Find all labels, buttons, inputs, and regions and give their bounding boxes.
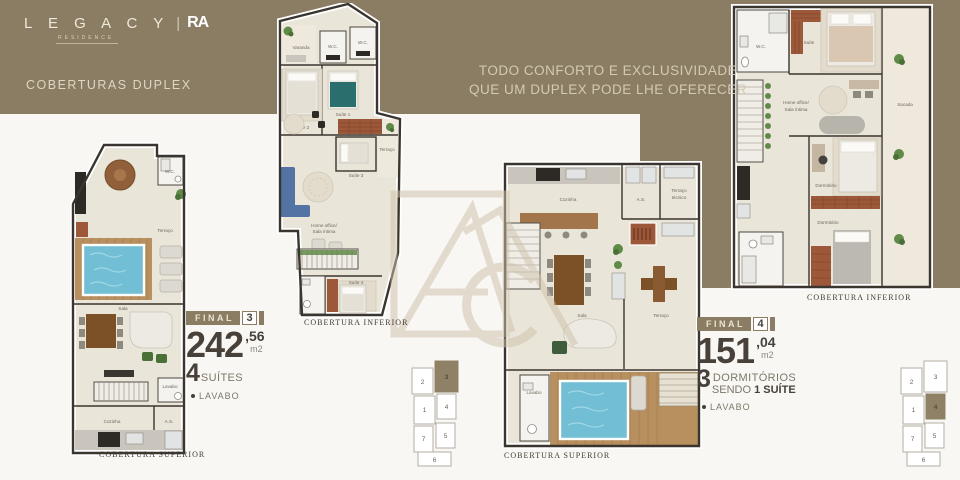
svg-text:Suíte 4: Suíte 4: [349, 280, 364, 285]
area-integer: 151: [697, 335, 754, 366]
logo-divider: |: [176, 15, 180, 32]
svg-text:Suíte 1: Suíte 1: [336, 112, 351, 117]
closet-band: [811, 196, 880, 209]
lavabo-room: Lavabo: [158, 378, 184, 402]
svg-text:técnico: técnico: [672, 195, 687, 200]
suites-count: 4 SUÍTES: [186, 362, 265, 385]
bedrooms-count: 3 DORMITÓRIOS SENDO 1 SUÍTE: [697, 368, 796, 396]
lounger: [631, 376, 646, 410]
shelf: [612, 273, 625, 299]
svg-text:Suíte 3: Suíte 3: [349, 173, 364, 178]
final-label: FINAL: [697, 317, 751, 331]
chaise: [819, 116, 865, 134]
round-rug: [819, 86, 847, 114]
keyplan-final4: 2 3 1 4 7 5 6: [896, 356, 952, 468]
kitchen-counter: [75, 430, 184, 450]
svg-text:7: 7: [911, 436, 915, 443]
svg-text:Terraço: Terraço: [653, 313, 669, 318]
svg-text:5: 5: [933, 433, 937, 440]
sub-prefix: SENDO: [712, 384, 754, 396]
tagline: TODO CONFORTO E EXCLUSIVIDADE QUE UM DUP…: [462, 61, 754, 99]
svg-text:Home office/: Home office/: [311, 223, 337, 228]
kitchen-counter: [508, 167, 620, 184]
svg-text:W.C.: W.C.: [165, 169, 175, 174]
svg-text:A.S.: A.S.: [637, 197, 646, 202]
varanda: Varanda: [282, 25, 316, 65]
unit3-spec: FINAL 3 242 ,56 m2 4 SUÍTES LAVABO: [186, 311, 265, 401]
area-decimal: ,04: [756, 336, 775, 348]
loungers: [160, 246, 182, 292]
svg-text:Terraço: Terraço: [157, 228, 173, 233]
svg-text:Terraço: Terraço: [379, 147, 395, 152]
plan-final4-inferior: Sacada W.C. Suíte: [731, 4, 933, 291]
sideboard: [104, 370, 134, 377]
bullet-label: LAVABO: [710, 402, 751, 412]
svg-text:4: 4: [445, 404, 449, 411]
page-title: COBERTURAS DUPLEX: [26, 78, 192, 92]
svg-text:7: 7: [422, 436, 426, 443]
svg-text:2: 2: [910, 379, 914, 386]
area-value: 151 ,04 m2: [697, 335, 796, 366]
svg-text:Sacada: Sacada: [897, 102, 913, 107]
round-rug: [303, 172, 333, 202]
svg-text:Dormitório: Dormitório: [815, 183, 837, 188]
svg-text:W.C.: W.C.: [756, 44, 766, 49]
balcony-strip: [883, 8, 929, 286]
wash-basin: [662, 223, 694, 236]
svg-text:Lavabo: Lavabo: [162, 384, 178, 389]
wc-room: W.C.: [158, 157, 183, 185]
office-chair: [318, 121, 325, 128]
lavabo-room: Lavabo: [520, 375, 549, 441]
plan-caption: COBERTURA INFERIOR: [807, 293, 911, 302]
sub-bold: 1 SUÍTE: [754, 384, 796, 396]
count-number: 4: [186, 362, 200, 385]
svg-text:Cozinha: Cozinha: [104, 419, 121, 424]
logo-partner-monogram: RA: [187, 14, 208, 32]
badge-tab: [259, 311, 264, 325]
plan-final3-superior: W.C. Terraço: [70, 142, 188, 456]
area-unit: m2: [756, 350, 775, 360]
pool: [560, 381, 628, 439]
unit4-spec: FINAL 4 151 ,04 m2 3 DORMITÓRIOS SENDO 1…: [697, 317, 796, 412]
bullet-dot: [702, 405, 706, 409]
bullet-dot: [191, 394, 195, 398]
logo-name: L E G A C Y: [24, 15, 169, 32]
garden-stairs: [297, 249, 358, 269]
sofa: [130, 312, 172, 348]
plan-caption: COBERTURA INFERIOR: [304, 318, 408, 327]
pool: [83, 245, 144, 295]
svg-text:Sala íntima: Sala íntima: [313, 229, 336, 234]
svg-text:Dormitório: Dormitório: [817, 220, 839, 225]
lavabo-item: LAVABO: [702, 402, 796, 412]
area-unit: m2: [245, 344, 264, 354]
bullet-label: LAVABO: [199, 391, 240, 401]
svg-text:Terraço: Terraço: [671, 188, 687, 193]
svg-text:2: 2: [421, 379, 425, 386]
svg-text:A.S.: A.S.: [165, 419, 174, 424]
area-value: 242 ,56 m2: [186, 329, 265, 360]
final-number: 4: [753, 317, 768, 331]
watermark-logo: [386, 186, 578, 364]
stairs: [94, 382, 148, 401]
count-label: DORMITÓRIOS: [713, 372, 796, 384]
logo-rule: [56, 43, 118, 44]
svg-text:Home office/: Home office/: [783, 100, 809, 105]
flyer-page: L E G A C Y | RA RESIDENCE COBERTURAS DU…: [0, 0, 960, 480]
count-subline: SENDO 1 SUÍTE: [712, 384, 796, 396]
plan-final3-inferior: Varanda W.C. W.C. Suíte 2 Suíte 1: [274, 3, 404, 324]
svg-text:W.C.: W.C.: [328, 44, 338, 49]
final4-badge: FINAL 4: [697, 317, 796, 331]
bar-counter: [75, 172, 86, 214]
lavabo-item: LAVABO: [191, 391, 265, 401]
plan-caption: COBERTURA SUPERIOR: [99, 450, 205, 459]
svg-text:Sala: Sala: [118, 306, 128, 311]
office-chair: [312, 111, 319, 118]
final3-badge: FINAL 3: [186, 311, 265, 325]
svg-text:Lavabo: Lavabo: [526, 390, 542, 395]
bathroom: [300, 276, 325, 314]
svg-text:6: 6: [922, 457, 926, 464]
final-label: FINAL: [186, 311, 240, 325]
svg-text:Sala: Sala: [577, 313, 587, 318]
svg-text:5: 5: [444, 433, 448, 440]
office-rug: [284, 114, 304, 134]
bathroom: [739, 232, 783, 286]
deck-steps: [659, 373, 698, 406]
appliance: [737, 204, 750, 218]
barbecue-grill: [630, 223, 656, 245]
tagline-line1: TODO CONFORTO E EXCLUSIVIDADE: [462, 61, 754, 80]
count-label: SUÍTES: [201, 372, 243, 384]
svg-text:3: 3: [934, 374, 938, 381]
suite4-bed: Suíte 4: [327, 279, 376, 313]
svg-text:4: 4: [934, 404, 938, 411]
bathroom: W.C.: [350, 27, 376, 59]
round-dining-table: [105, 160, 135, 190]
svg-text:Suíte: Suíte: [804, 40, 815, 45]
wardrobe: [338, 119, 382, 134]
area-integer: 242: [186, 329, 243, 360]
svg-text:Varanda: Varanda: [292, 45, 309, 50]
grill: [76, 222, 88, 237]
count-number: 3: [697, 368, 711, 391]
svg-text:3: 3: [445, 374, 449, 381]
badge-tab: [770, 317, 775, 331]
plan-caption: COBERTURA SUPERIOR: [504, 451, 610, 460]
area-decimal: ,56: [245, 330, 264, 342]
logo-residence-label: RESIDENCE: [58, 35, 208, 41]
brand-logo: L E G A C Y | RA RESIDENCE: [24, 14, 208, 44]
svg-text:Sala íntima: Sala íntima: [785, 107, 808, 112]
tagline-line2: QUE UM DUPLEX PODE LHE OFERECER: [462, 80, 754, 99]
counter: [737, 166, 750, 200]
svg-text:W.C.: W.C.: [358, 40, 368, 45]
svg-text:1: 1: [912, 407, 916, 414]
svg-text:6: 6: [433, 457, 437, 464]
keyplan-final3: 2 3 1 4 7 5 6: [407, 356, 463, 468]
final-number: 3: [242, 311, 257, 325]
bathroom: W.C.: [320, 31, 346, 63]
svg-text:1: 1: [423, 407, 427, 414]
